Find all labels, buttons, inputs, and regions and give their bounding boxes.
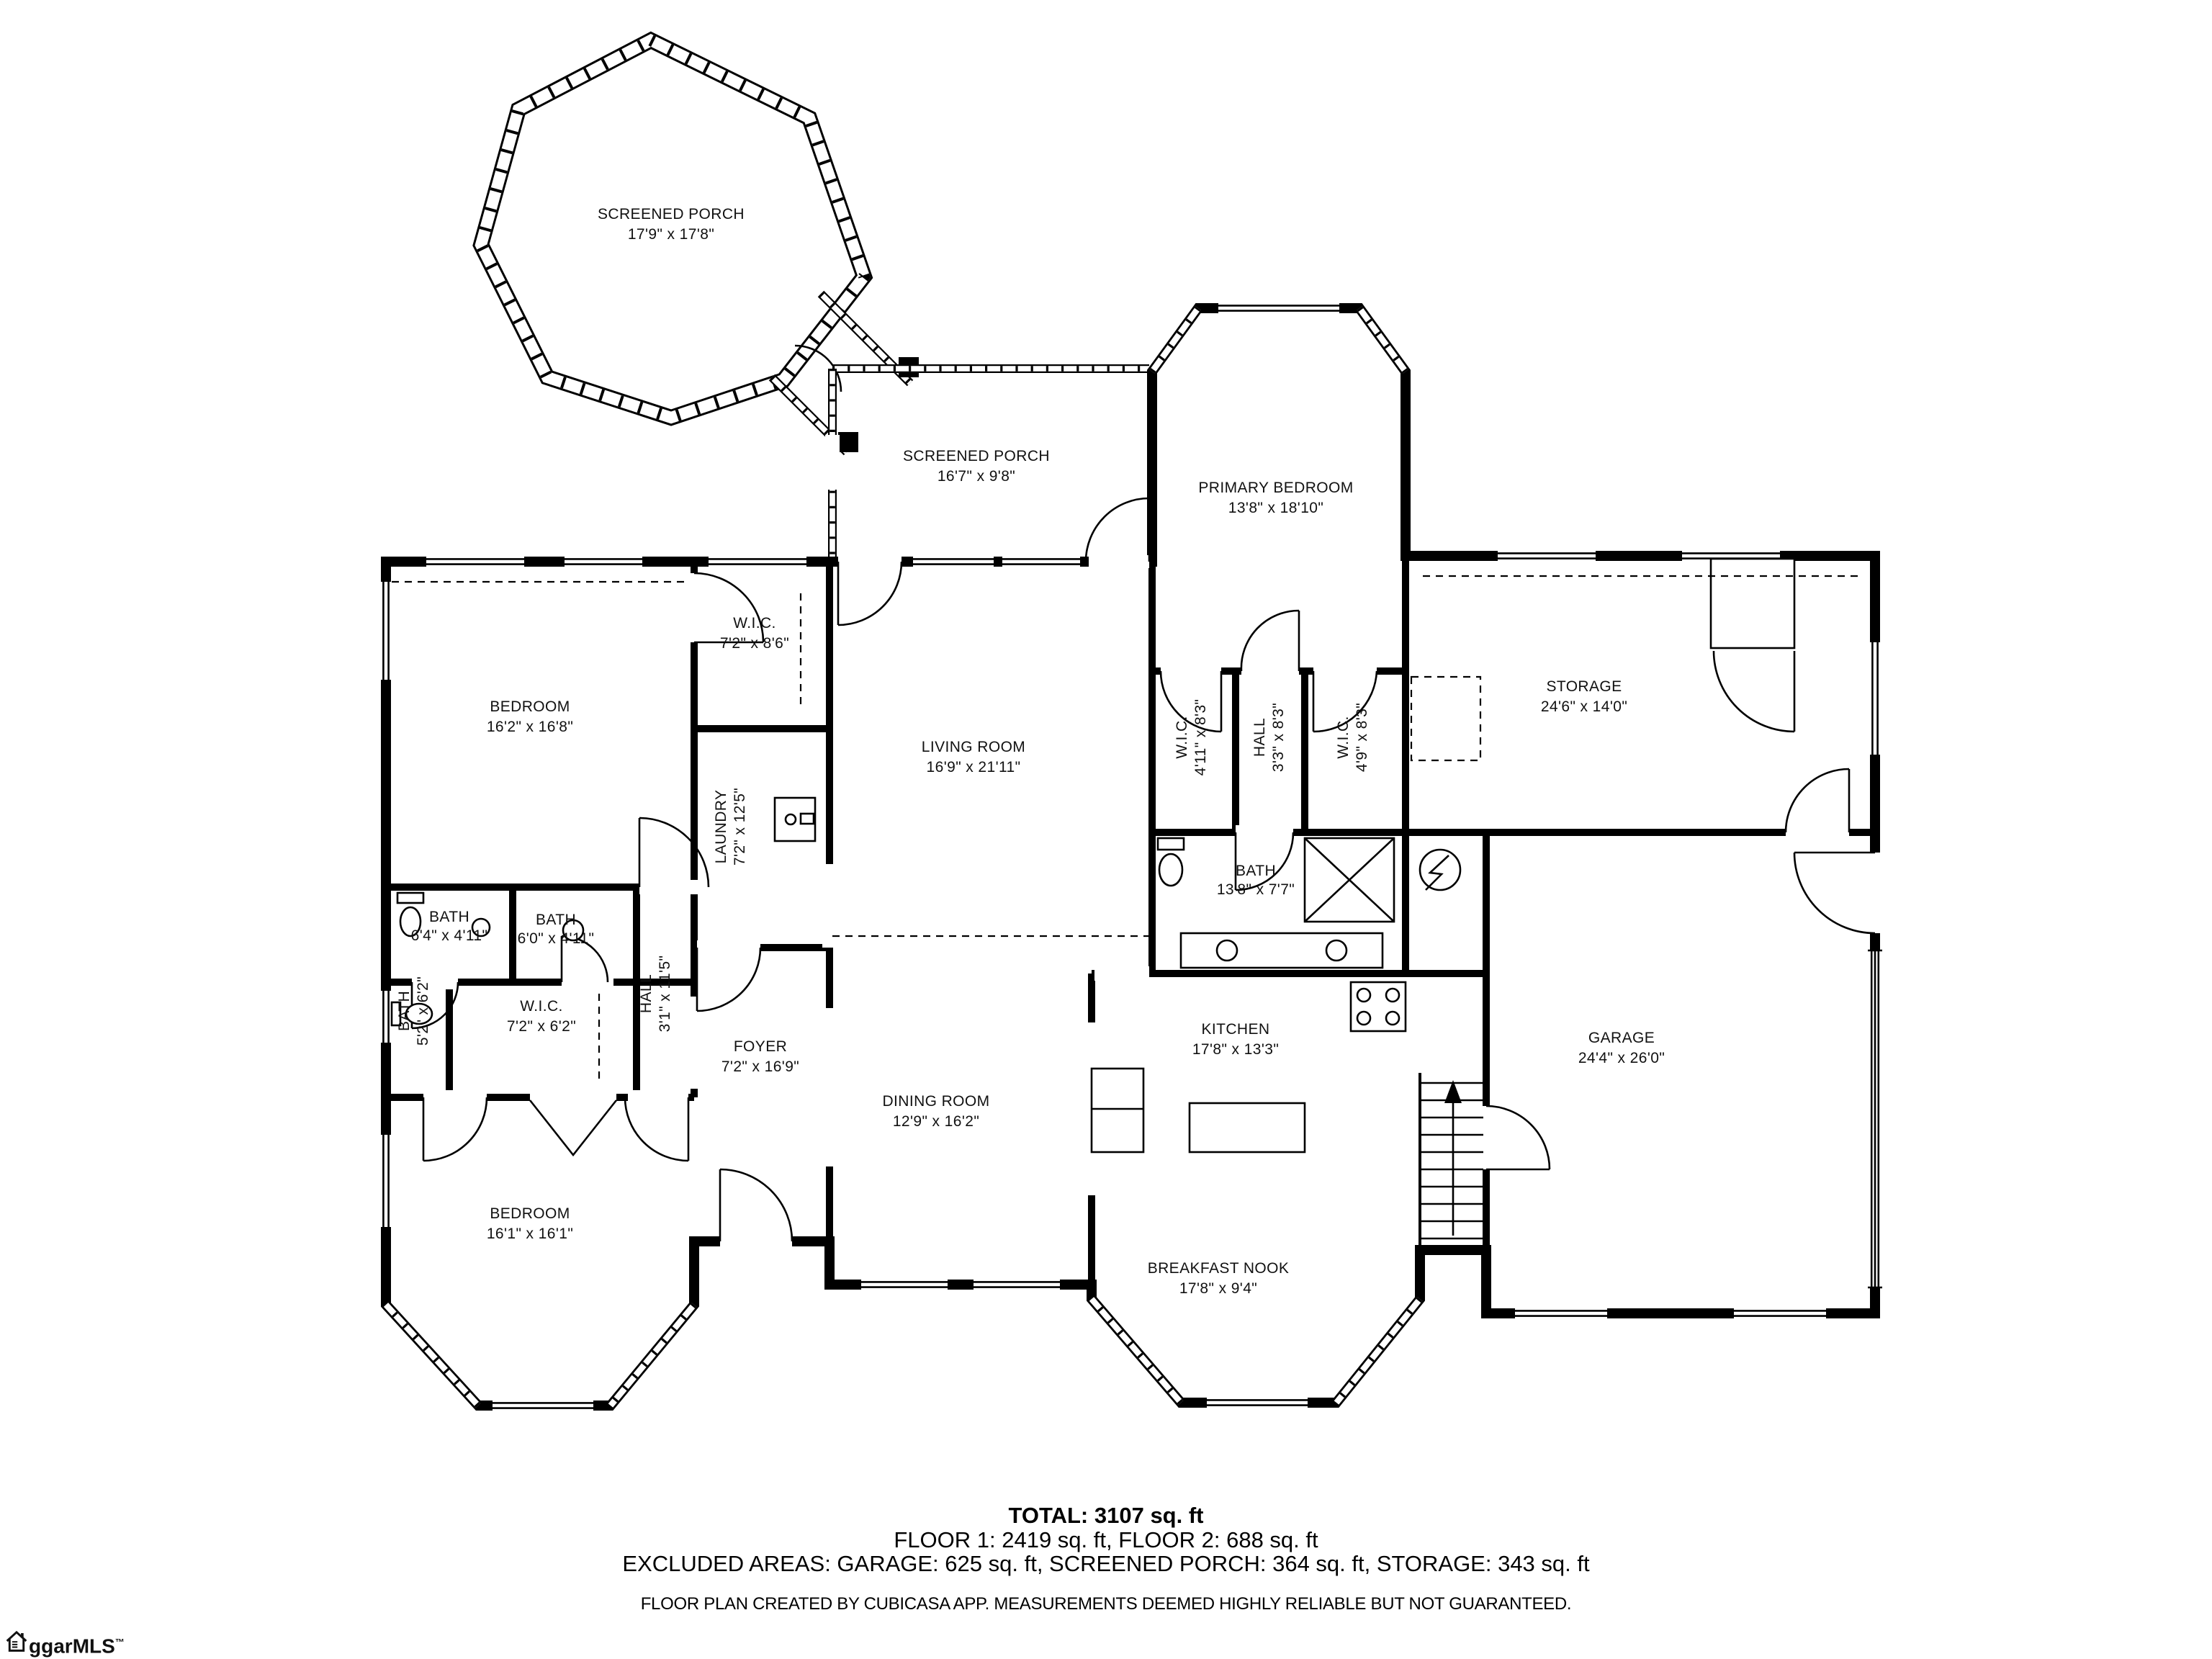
disclaimer: FLOOR PLAN CREATED BY CUBICASA APP. MEAS… bbox=[0, 1594, 2212, 1614]
svg-text:7'2" x 6'2": 7'2" x 6'2" bbox=[507, 1018, 576, 1035]
stove-icon bbox=[1351, 982, 1406, 1031]
floor-areas: FLOOR 1: 2419 sq. ft, FLOOR 2: 688 sq. f… bbox=[0, 1528, 2212, 1552]
room-label-laundry: LAUNDRY7'2" x 12'5" bbox=[713, 788, 748, 866]
room-label-kitchen: KITCHEN17'8" x 13'3" bbox=[1192, 1021, 1279, 1058]
svg-text:7'2" x 12'5": 7'2" x 12'5" bbox=[732, 788, 748, 866]
svg-text:FOYER: FOYER bbox=[734, 1038, 787, 1055]
room-label-hall-lower: HALL3'1" x 11'5" bbox=[638, 956, 673, 1033]
room-label-screened-porch-lower: SCREENED PORCH16'7" x 9'8" bbox=[903, 448, 1050, 485]
svg-text:SCREENED PORCH: SCREENED PORCH bbox=[903, 448, 1050, 464]
svg-text:STORAGE: STORAGE bbox=[1546, 678, 1622, 695]
wall-openings bbox=[412, 555, 1881, 1248]
room-label-living-room: LIVING ROOM16'9" x 21'11" bbox=[922, 739, 1025, 775]
closet-box bbox=[1711, 559, 1794, 732]
floor-plan-page: SCREENED PORCH17'9" x 17'8" SCREENED POR… bbox=[0, 0, 2212, 1659]
svg-text:LAUNDRY: LAUNDRY bbox=[713, 790, 729, 864]
room-label-foyer: FOYER7'2" x 16'9" bbox=[721, 1038, 799, 1075]
svg-text:7'2" x 8'6": 7'2" x 8'6" bbox=[720, 635, 789, 652]
fridge-icon bbox=[1092, 1069, 1143, 1152]
svg-text:BATH: BATH bbox=[1236, 863, 1276, 879]
room-label-bath-primary: BATH13'8" x 7'7" bbox=[1217, 863, 1295, 898]
svg-text:7'2" x 16'9": 7'2" x 16'9" bbox=[721, 1058, 799, 1075]
room-label-hall-center: HALL3'3" x 8'3" bbox=[1251, 703, 1287, 772]
svg-text:3'1" x 11'5": 3'1" x 11'5" bbox=[657, 956, 673, 1033]
svg-text:6'0" x 4'11": 6'0" x 4'11" bbox=[518, 930, 595, 947]
room-label-primary-bedroom: PRIMARY BEDROOM13'8" x 18'10" bbox=[1198, 480, 1353, 516]
svg-text:17'8" x 9'4": 17'8" x 9'4" bbox=[1179, 1280, 1257, 1297]
shower-icon bbox=[1305, 838, 1394, 922]
water-heater-icon bbox=[1420, 850, 1460, 890]
svg-text:24'6" x 14'0": 24'6" x 14'0" bbox=[1541, 698, 1627, 715]
exterior-walls bbox=[386, 308, 1875, 1406]
room-label-screened-porch-upper: SCREENED PORCH17'9" x 17'8" bbox=[598, 206, 745, 243]
room-label-wic-top: W.I.C.7'2" x 8'6" bbox=[720, 615, 789, 652]
svg-text:W.I.C.: W.I.C. bbox=[520, 998, 563, 1015]
svg-text:KITCHEN: KITCHEN bbox=[1202, 1021, 1270, 1038]
svg-text:HALL: HALL bbox=[638, 974, 655, 1013]
svg-text:GARAGE: GARAGE bbox=[1588, 1030, 1655, 1046]
svg-text:12'9" x 16'2": 12'9" x 16'2" bbox=[893, 1113, 979, 1130]
room-label-wic-lower: W.I.C.7'2" x 6'2" bbox=[507, 998, 576, 1035]
room-label-bedroom-upper: BEDROOM16'2" x 16'8" bbox=[487, 698, 573, 735]
room-label-garage: GARAGE24'4" x 26'0" bbox=[1578, 1030, 1665, 1066]
room-label-bedroom-lower: BEDROOM16'1" x 16'1" bbox=[487, 1205, 573, 1242]
stairs-icon bbox=[1420, 1073, 1483, 1250]
svg-text:HALL: HALL bbox=[1251, 718, 1268, 757]
garage-door bbox=[1868, 950, 1882, 1287]
svg-text:13'8" x 7'7": 13'8" x 7'7" bbox=[1217, 881, 1295, 898]
svg-text:BATH: BATH bbox=[536, 912, 576, 928]
mls-logo: ggarMLS™ bbox=[4, 1629, 125, 1657]
svg-text:16'2" x 16'8": 16'2" x 16'8" bbox=[487, 719, 573, 735]
svg-text:DINING ROOM: DINING ROOM bbox=[882, 1093, 989, 1110]
total-area: TOTAL: 3107 sq. ft bbox=[0, 1503, 2212, 1528]
svg-text:16'1" x 16'1": 16'1" x 16'1" bbox=[487, 1226, 573, 1242]
svg-text:5'2" x 6'2": 5'2" x 6'2" bbox=[415, 976, 431, 1046]
mls-logo-text: ggarMLS™ bbox=[29, 1632, 125, 1657]
house-icon bbox=[4, 1629, 29, 1657]
svg-text:17'8" x 13'3": 17'8" x 13'3" bbox=[1192, 1041, 1279, 1058]
svg-text:6'4" x 4'11": 6'4" x 4'11" bbox=[411, 927, 488, 944]
kitchen-island bbox=[1190, 1103, 1305, 1152]
toilet-icon bbox=[1158, 838, 1184, 886]
room-label-breakfast-nook: BREAKFAST NOOK17'8" x 9'4" bbox=[1148, 1260, 1290, 1297]
screened-porch-octagon bbox=[481, 40, 919, 452]
interior-walls bbox=[386, 556, 1875, 1313]
room-label-wic-left: W.I.C.4'11" x 8'3" bbox=[1174, 699, 1209, 776]
svg-text:SCREENED PORCH: SCREENED PORCH bbox=[598, 206, 745, 222]
svg-text:BEDROOM: BEDROOM bbox=[490, 1205, 570, 1222]
svg-text:4'11" x 8'3": 4'11" x 8'3" bbox=[1192, 699, 1209, 776]
excluded-areas: EXCLUDED AREAS: GARAGE: 625 sq. ft, SCRE… bbox=[0, 1552, 2212, 1575]
svg-text:PRIMARY BEDROOM: PRIMARY BEDROOM bbox=[1198, 480, 1353, 496]
svg-text:W.I.C.: W.I.C. bbox=[733, 615, 776, 631]
floor-plan-drawing: SCREENED PORCH17'9" x 17'8" SCREENED POR… bbox=[0, 0, 2212, 1659]
svg-text:3'3" x 8'3": 3'3" x 8'3" bbox=[1270, 703, 1287, 772]
svg-text:4'9" x 8'3": 4'9" x 8'3" bbox=[1354, 703, 1370, 772]
svg-text:BREAKFAST NOOK: BREAKFAST NOOK bbox=[1148, 1260, 1290, 1277]
svg-text:13'8" x 18'10": 13'8" x 18'10" bbox=[1228, 500, 1323, 516]
vanity-icon bbox=[1181, 933, 1382, 968]
area-summary: TOTAL: 3107 sq. ft FLOOR 1: 2419 sq. ft,… bbox=[0, 1503, 2212, 1614]
svg-text:BATH: BATH bbox=[429, 909, 469, 925]
svg-text:LIVING ROOM: LIVING ROOM bbox=[922, 739, 1025, 755]
svg-text:BATH: BATH bbox=[396, 991, 413, 1031]
svg-text:W.I.C.: W.I.C. bbox=[1335, 716, 1352, 759]
room-label-wic-right: W.I.C.4'9" x 8'3" bbox=[1335, 703, 1370, 772]
svg-text:16'7" x 9'8": 16'7" x 9'8" bbox=[938, 468, 1015, 485]
svg-text:17'9" x 17'8": 17'9" x 17'8" bbox=[628, 226, 714, 243]
svg-text:16'9" x 21'11": 16'9" x 21'11" bbox=[927, 759, 1021, 775]
svg-text:24'4" x 26'0": 24'4" x 26'0" bbox=[1578, 1050, 1665, 1066]
room-label-storage: STORAGE24'6" x 14'0" bbox=[1541, 678, 1627, 715]
svg-text:BEDROOM: BEDROOM bbox=[490, 698, 570, 715]
laundry-sink-icon bbox=[775, 798, 815, 841]
room-label-dining-room: DINING ROOM12'9" x 16'2" bbox=[882, 1093, 989, 1130]
svg-text:W.I.C.: W.I.C. bbox=[1174, 716, 1190, 759]
windows bbox=[381, 303, 1882, 1411]
